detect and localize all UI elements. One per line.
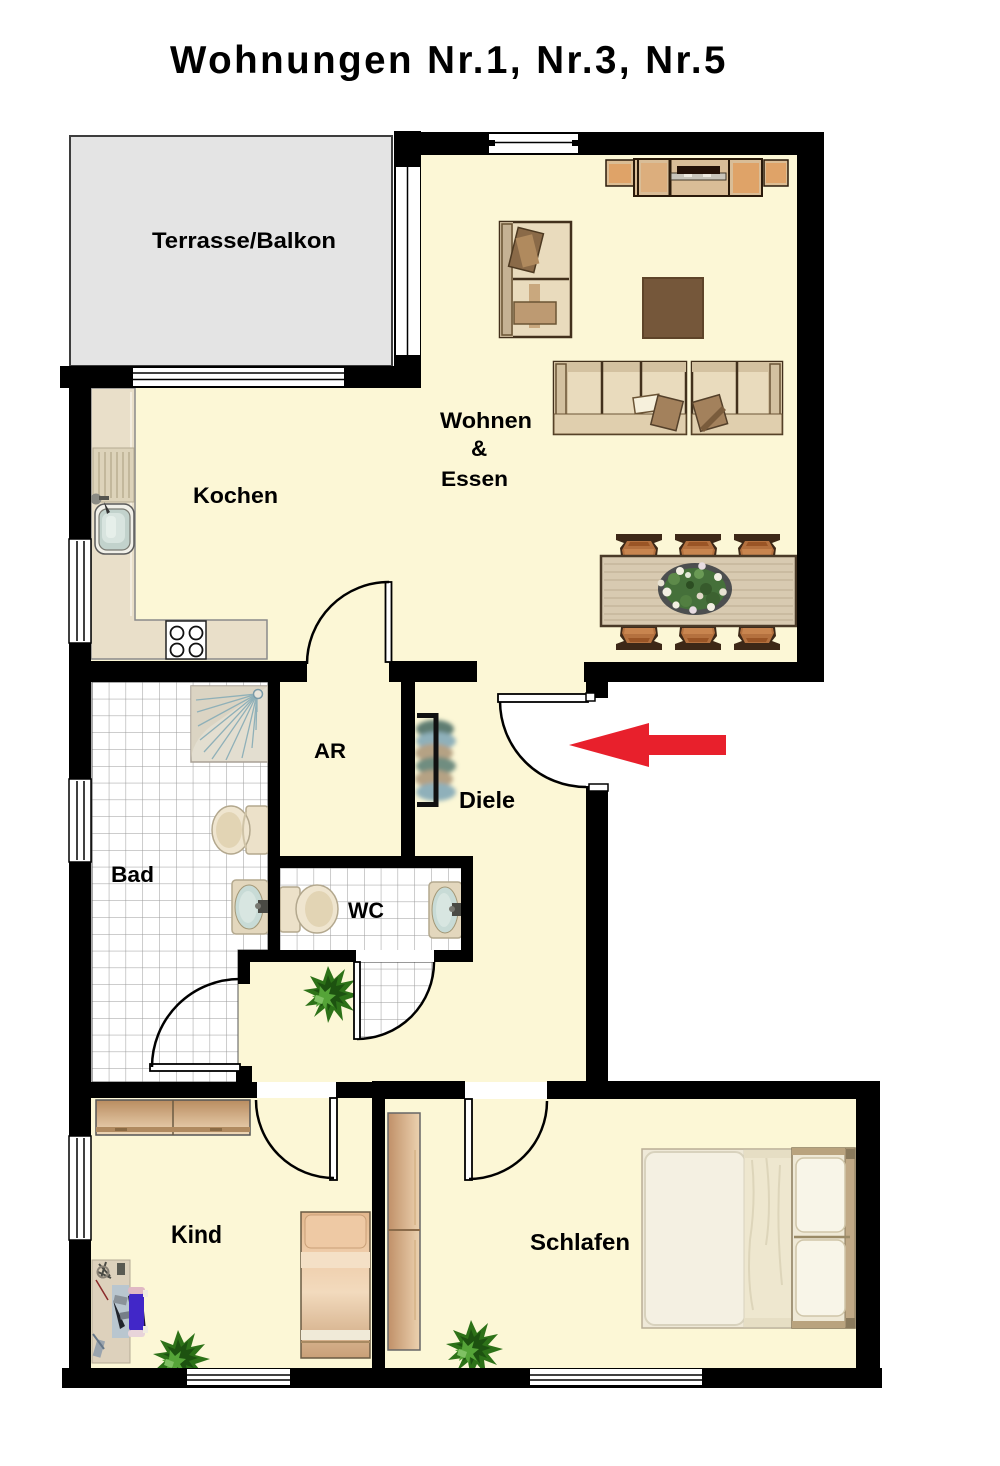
svg-text:Essen: Essen: [441, 467, 508, 491]
svg-text:Terrasse/Balkon: Terrasse/Balkon: [152, 228, 336, 253]
svg-text:Wohnungen Nr.1, Nr.3, Nr.5: Wohnungen Nr.1, Nr.3, Nr.5: [170, 39, 728, 82]
svg-text:Kind: Kind: [171, 1221, 222, 1249]
svg-text:Kochen: Kochen: [193, 483, 278, 508]
svg-text:Bad: Bad: [111, 862, 154, 887]
svg-text:&: &: [471, 436, 487, 461]
svg-text:Schlafen: Schlafen: [530, 1229, 630, 1255]
svg-text:Wohnen: Wohnen: [440, 408, 532, 433]
svg-text:Diele: Diele: [459, 787, 515, 813]
svg-text:AR: AR: [314, 740, 346, 763]
svg-text:WC: WC: [348, 898, 384, 923]
